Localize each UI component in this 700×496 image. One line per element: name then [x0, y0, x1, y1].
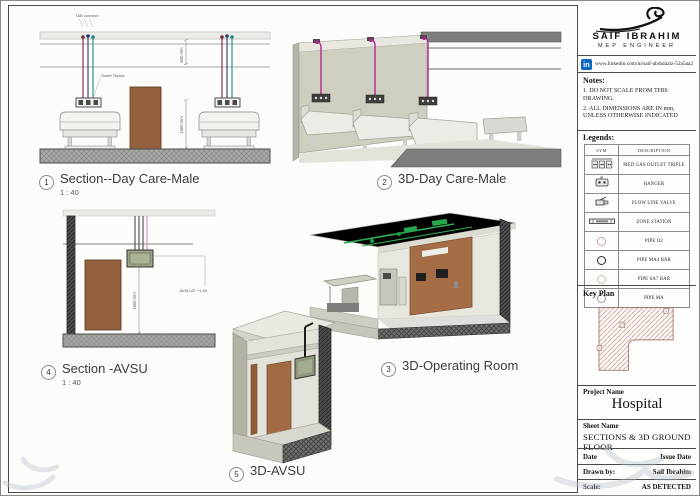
project-name-label: Project Name — [583, 388, 691, 396]
linkedin-icon: in — [581, 59, 592, 70]
section-avsu-drawing: AVSU AT +1.60 1600 mm — [59, 204, 224, 352]
view-title-4: 4 Section -AVSU 1 : 40 — [41, 362, 148, 387]
key-plan-heading: Key Plan — [583, 289, 691, 298]
pipe-ma4-icon — [597, 256, 606, 265]
view-title: 3D-Day Care-Male — [398, 172, 506, 186]
view-number-bubble: 4 — [41, 365, 56, 380]
drawn-by-value: Saif Ibrahim — [653, 468, 691, 476]
legend-col-desc: DESCRIPTION — [619, 145, 690, 156]
issue-date-label: Issue Date — [660, 453, 691, 461]
view-title: 3D-Operating Room — [402, 359, 518, 373]
note-item: 1. DO NOT SCALE FROM THIS DRAWING. — [583, 87, 691, 103]
legend-row: HANGER — [585, 175, 690, 194]
ceiling-band — [421, 32, 561, 42]
linkedin-url: www.linkedin.com/in/saif-abdulaziz-52a5a… — [595, 61, 693, 67]
view-number-bubble: 3 — [381, 362, 396, 377]
3d-avsu-drawing — [221, 299, 361, 471]
view-title-5: 5 3D-AVSU — [229, 464, 305, 482]
bed-right — [199, 112, 259, 150]
floor-band — [391, 149, 561, 167]
project-name-section: Project Name Hospital — [578, 385, 696, 419]
legend-row: PIPE O2 — [585, 232, 690, 251]
view-scale: 1 : 40 — [60, 188, 199, 197]
flow-line-valve-icon — [594, 195, 610, 207]
door — [85, 260, 121, 330]
notes-heading: Notes: — [583, 76, 691, 85]
door — [130, 87, 161, 149]
scale-value: AS DETECTED — [642, 483, 691, 491]
dim-label: 600 mm — [179, 47, 184, 63]
slab-band — [327, 303, 359, 312]
legend-col-sym: SYM — [585, 145, 619, 156]
hanger-icon — [593, 176, 611, 188]
legend-row: ZONE STATION — [585, 213, 690, 232]
column — [500, 219, 510, 323]
view-title-3: 3 3D-Operating Room — [381, 359, 518, 377]
drawn-by-row: Drawn by: Saif Ibrahim — [578, 464, 696, 479]
notes-section: Notes: 1. DO NOT SCALE FROM THIS DRAWING… — [578, 72, 696, 130]
scale-row: Scale: AS DETECTED — [578, 479, 696, 493]
3d-day-care-male-drawing — [287, 27, 565, 175]
view-scale: 1 : 40 — [62, 378, 148, 387]
legend-row: FLOW LINE VALVE — [585, 194, 690, 213]
zone-station-icon — [588, 216, 616, 226]
legend-row: MED GAS OUTLET TRIPLE — [585, 156, 690, 175]
pipe-sa7-icon — [597, 275, 606, 284]
date-label: Date — [583, 453, 597, 461]
drawing-sheet: 600 mm 1400 mm T&B connect Outlet Triple… — [0, 0, 700, 496]
pipe-annotation: T&B connect — [75, 13, 99, 18]
brand-name: SAIF IBRAHIM — [593, 31, 682, 42]
note-item: 2. ALL DIMENSIONS ARE IN mm, UNLESS OTHE… — [583, 105, 691, 121]
med-gas-outlet-triple-icon — [590, 157, 614, 169]
dim-label: 1400 mm — [179, 116, 184, 134]
view-title: 3D-AVSU — [250, 464, 305, 478]
view-title: Section -AVSU — [62, 362, 148, 376]
pipe-o2-icon — [597, 237, 606, 246]
eagle-logo-icon — [588, 7, 686, 33]
legend-row: PIPE MA4 BAR — [585, 251, 690, 270]
outlet-annotation: Outlet Triples — [101, 73, 125, 78]
ceiling-slab — [40, 32, 270, 39]
project-name-value: Hospital — [583, 396, 691, 413]
floor-slab — [63, 334, 215, 347]
view-number-bubble: 2 — [377, 175, 392, 190]
company-logo: SAIF IBRAHIM MEP ENGINEER — [578, 5, 696, 55]
view-title: Section--Day Care-Male — [60, 172, 199, 186]
linkedin-link[interactable]: in www.linkedin.com/in/saif-abdulaziz-52… — [578, 55, 696, 72]
brand-tagline: MEP ENGINEER — [598, 43, 676, 49]
section-day-care-male-drawing: 600 mm 1400 mm T&B connect Outlet Triple… — [34, 11, 276, 173]
legends-heading: Legends: — [583, 133, 691, 142]
view-number-bubble: 5 — [229, 467, 244, 482]
view-number-bubble: 1 — [39, 175, 54, 190]
sheet-name-label: Sheet Name — [583, 422, 691, 430]
bed-left — [60, 112, 120, 150]
sheet-name-section: Sheet Name SECTIONS & 3D GROUND FLOOR — [578, 419, 696, 448]
scale-label: Scale: — [583, 483, 601, 491]
view-title-1: 1 Section--Day Care-Male 1 : 40 — [39, 172, 199, 197]
wall-section — [67, 216, 75, 334]
key-plan-section: Key Plan — [578, 285, 696, 385]
title-block: SAIF IBRAHIM MEP ENGINEER in www.linkedi… — [577, 5, 696, 493]
door — [267, 361, 291, 437]
drawn-by-label: Drawn by: — [583, 468, 615, 476]
view-title-2: 2 3D-Day Care-Male — [377, 172, 506, 190]
dim-label: 1600 mm — [132, 292, 137, 310]
avsu-annotation: AVSU AT +1.60 — [180, 288, 208, 293]
key-plan-drawing — [583, 300, 691, 376]
floor-slab — [40, 149, 270, 163]
date-row: Date Issue Date — [578, 448, 696, 464]
legend-table: SYM DESCRIPTION MED GAS OUTLET TRIPLE — [584, 144, 690, 308]
legends-section: Legends: SYM DESCRIPTION MED GAS OUTLET … — [578, 130, 696, 285]
